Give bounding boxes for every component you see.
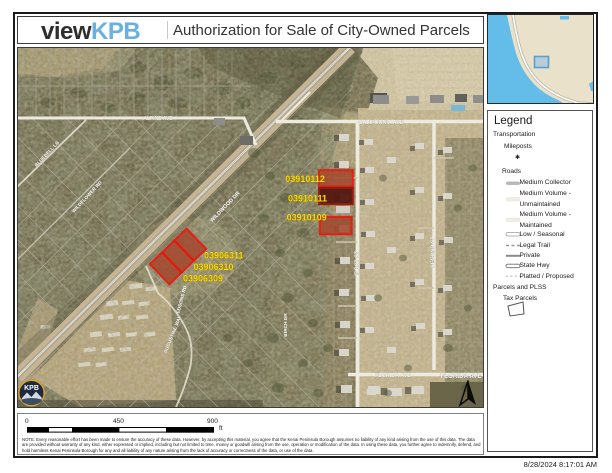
svg-text:03910111: 03910111 (288, 194, 327, 204)
svg-text:FIRST ST: FIRST ST (355, 250, 361, 275)
svg-text:FLORIDA AVE: FLORIDA AVE (440, 373, 481, 380)
svg-text:03910112: 03910112 (285, 174, 325, 184)
svg-text:03910109: 03910109 (287, 213, 327, 223)
svg-text:FLORIDA AVE: FLORIDA AVE (375, 373, 411, 379)
svg-text:SECOND ST: SECOND ST (431, 236, 437, 268)
svg-text:BIRCH DR: BIRCH DR (283, 313, 289, 337)
svg-text:03906309: 03906309 (183, 274, 223, 284)
svg-text:03906310: 03906310 (194, 262, 234, 272)
svg-text:ALPINE AVE: ALPINE AVE (143, 116, 173, 122)
svg-text:03906311: 03906311 (204, 251, 244, 261)
svg-text:KPB: KPB (24, 385, 39, 392)
svg-text:CALIFORNIA AVE: CALIFORNIA AVE (358, 120, 403, 126)
